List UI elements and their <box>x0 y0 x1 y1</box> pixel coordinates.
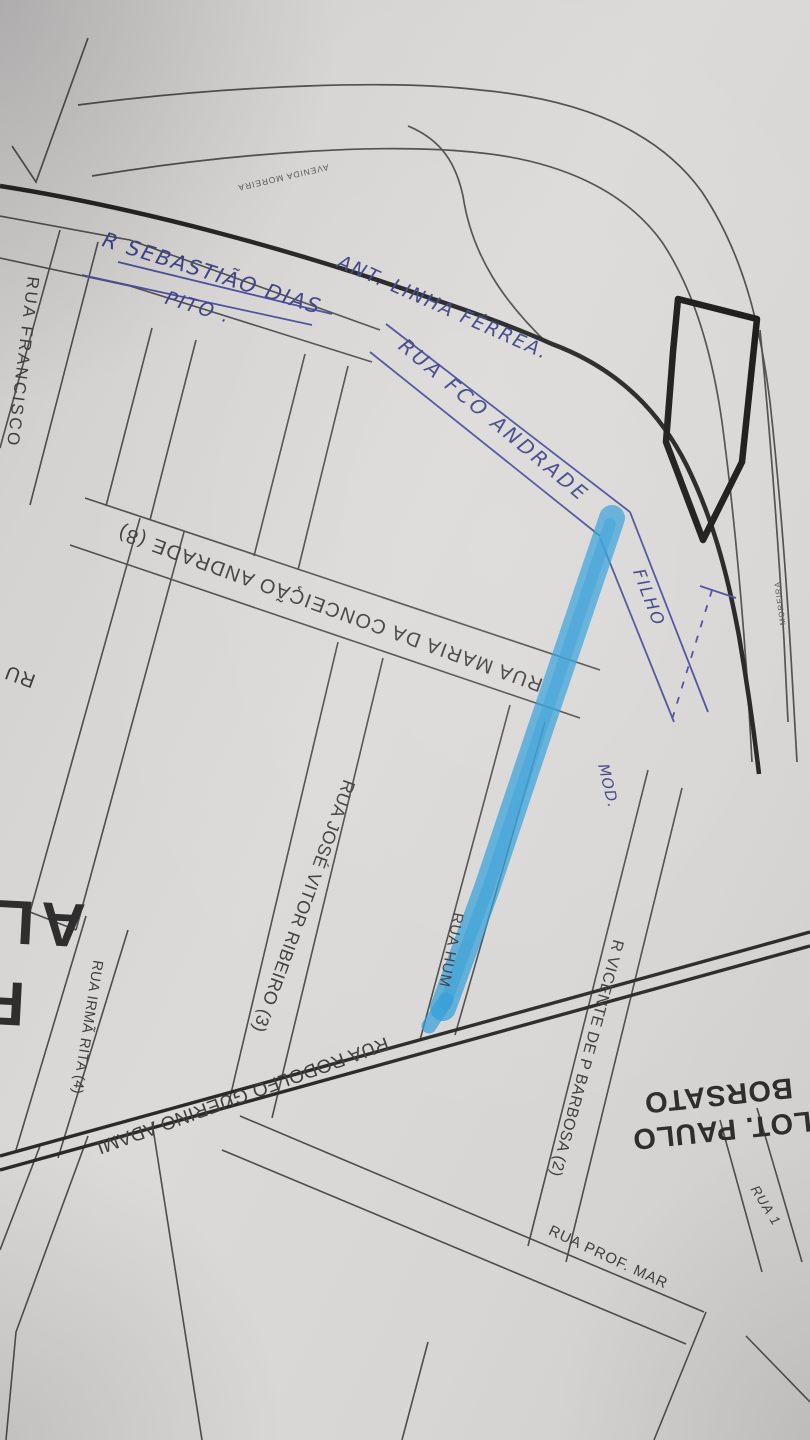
corner-street-line-a <box>654 1312 706 1440</box>
bottomleft-street-b <box>6 1136 88 1440</box>
maria-street-upper <box>85 498 600 670</box>
prof-mar-extension <box>402 1342 428 1440</box>
corner-street-line-b <box>746 1336 810 1402</box>
street-network <box>0 0 810 1440</box>
pen-filho-right <box>630 512 708 712</box>
pen-filho-left <box>600 538 674 722</box>
black-outlined-polygon <box>666 299 757 540</box>
marker-highlight-core <box>445 524 610 1004</box>
bottomleft-street-c <box>152 1122 202 1440</box>
edge-letter-bottom: F <box>0 967 27 1037</box>
avenue-outer-line <box>78 85 797 762</box>
cross-street-a-right <box>150 340 196 520</box>
paper-fold-line <box>12 38 88 182</box>
edge-letters-top: AL <box>0 885 87 958</box>
cross-street-b-right <box>298 366 348 570</box>
v1-street-left <box>30 518 140 912</box>
cross-street-a-left <box>106 328 152 506</box>
cross-street-b-left <box>254 354 305 556</box>
map-photo: AVENIDA MOREIRA MOREIRA R SEBASTIÃO DIAS… <box>0 0 810 1440</box>
avenue-edge-line <box>760 330 788 722</box>
prof-mar-street-lower <box>222 1150 686 1344</box>
pen-fco-andrade-lower <box>370 352 600 536</box>
maria-street-lower <box>70 545 580 718</box>
v1-street-right <box>76 532 184 930</box>
